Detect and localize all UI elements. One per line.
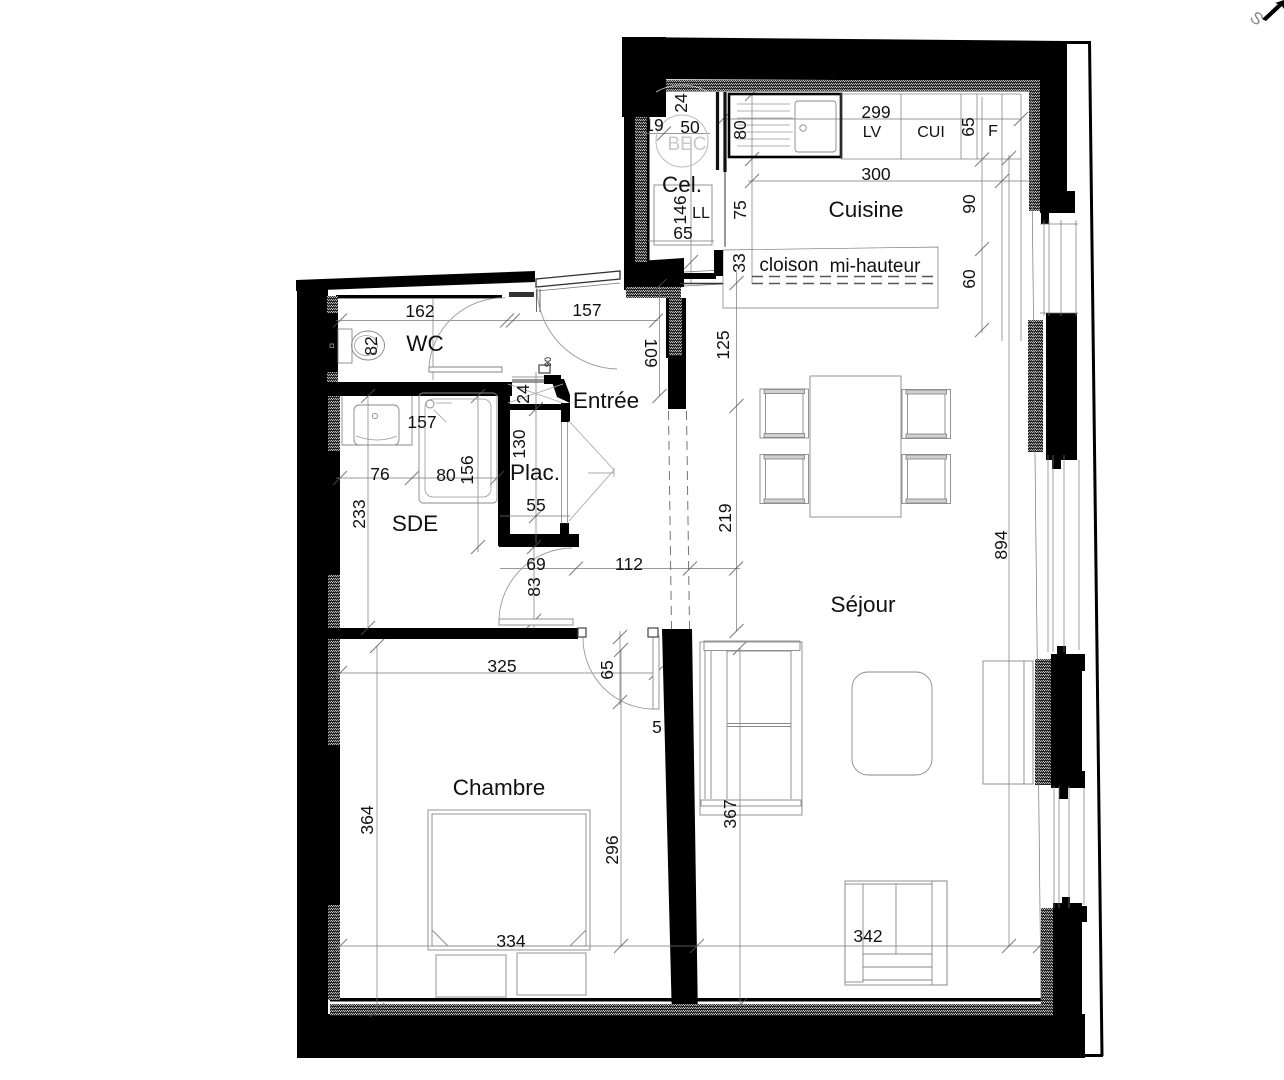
svg-text:162: 162 (405, 301, 434, 321)
svg-text:334: 334 (496, 931, 525, 951)
svg-text:Séjour: Séjour (830, 592, 896, 617)
svg-text:24: 24 (671, 93, 691, 113)
svg-text:mi-hauteur: mi-hauteur (830, 256, 921, 277)
svg-text:300: 300 (861, 164, 890, 184)
svg-text:75: 75 (730, 200, 750, 219)
svg-text:CUI: CUI (917, 124, 945, 141)
svg-text:65: 65 (597, 660, 617, 679)
svg-text:80: 80 (730, 120, 750, 140)
svg-text:50: 50 (680, 117, 700, 137)
svg-text:299: 299 (861, 102, 890, 122)
svg-text:90: 90 (543, 357, 553, 367)
svg-text:Entrée: Entrée (573, 388, 639, 413)
svg-text:LL: LL (692, 205, 710, 222)
svg-text:82: 82 (361, 336, 381, 355)
svg-text:33: 33 (729, 253, 749, 272)
svg-text:157: 157 (572, 300, 601, 320)
svg-text:Chambre: Chambre (453, 775, 546, 800)
svg-text:130: 130 (509, 429, 529, 458)
svg-text:83: 83 (524, 577, 544, 596)
svg-text:LV: LV (863, 124, 882, 141)
svg-text:894: 894 (991, 530, 1011, 559)
svg-text:Cel.: Cel. (662, 172, 702, 197)
svg-text:F: F (988, 123, 998, 140)
svg-text:157: 157 (407, 412, 436, 432)
svg-text:24: 24 (513, 384, 533, 404)
svg-text:90: 90 (959, 194, 979, 214)
svg-text:BEC: BEC (667, 134, 706, 155)
svg-text:65: 65 (958, 117, 978, 136)
svg-text:55: 55 (526, 495, 545, 515)
svg-text:342: 342 (853, 926, 882, 946)
svg-text:367: 367 (720, 799, 740, 828)
svg-text:19: 19 (644, 115, 663, 135)
svg-text:156: 156 (457, 455, 477, 484)
svg-text:SDE: SDE (392, 511, 438, 536)
svg-text:60: 60 (959, 269, 979, 289)
svg-text:125: 125 (713, 330, 733, 359)
svg-text:5: 5 (652, 717, 662, 737)
svg-text:76: 76 (370, 464, 389, 484)
svg-text:325: 325 (487, 656, 516, 676)
svg-text:80: 80 (436, 465, 456, 485)
svg-text:Plac.: Plac. (510, 460, 560, 485)
svg-text:296: 296 (602, 835, 622, 864)
svg-text:Cuisine: Cuisine (828, 197, 903, 222)
svg-text:219: 219 (715, 503, 735, 532)
svg-text:cloison: cloison (759, 255, 818, 276)
svg-text:109: 109 (641, 338, 661, 367)
svg-text:233: 233 (349, 499, 369, 528)
svg-text:65: 65 (673, 223, 692, 243)
svg-text:112: 112 (615, 554, 643, 574)
svg-text:364: 364 (357, 805, 377, 834)
svg-text:69: 69 (526, 554, 545, 574)
svg-text:WC: WC (406, 331, 444, 356)
svg-text:146: 146 (670, 195, 690, 224)
